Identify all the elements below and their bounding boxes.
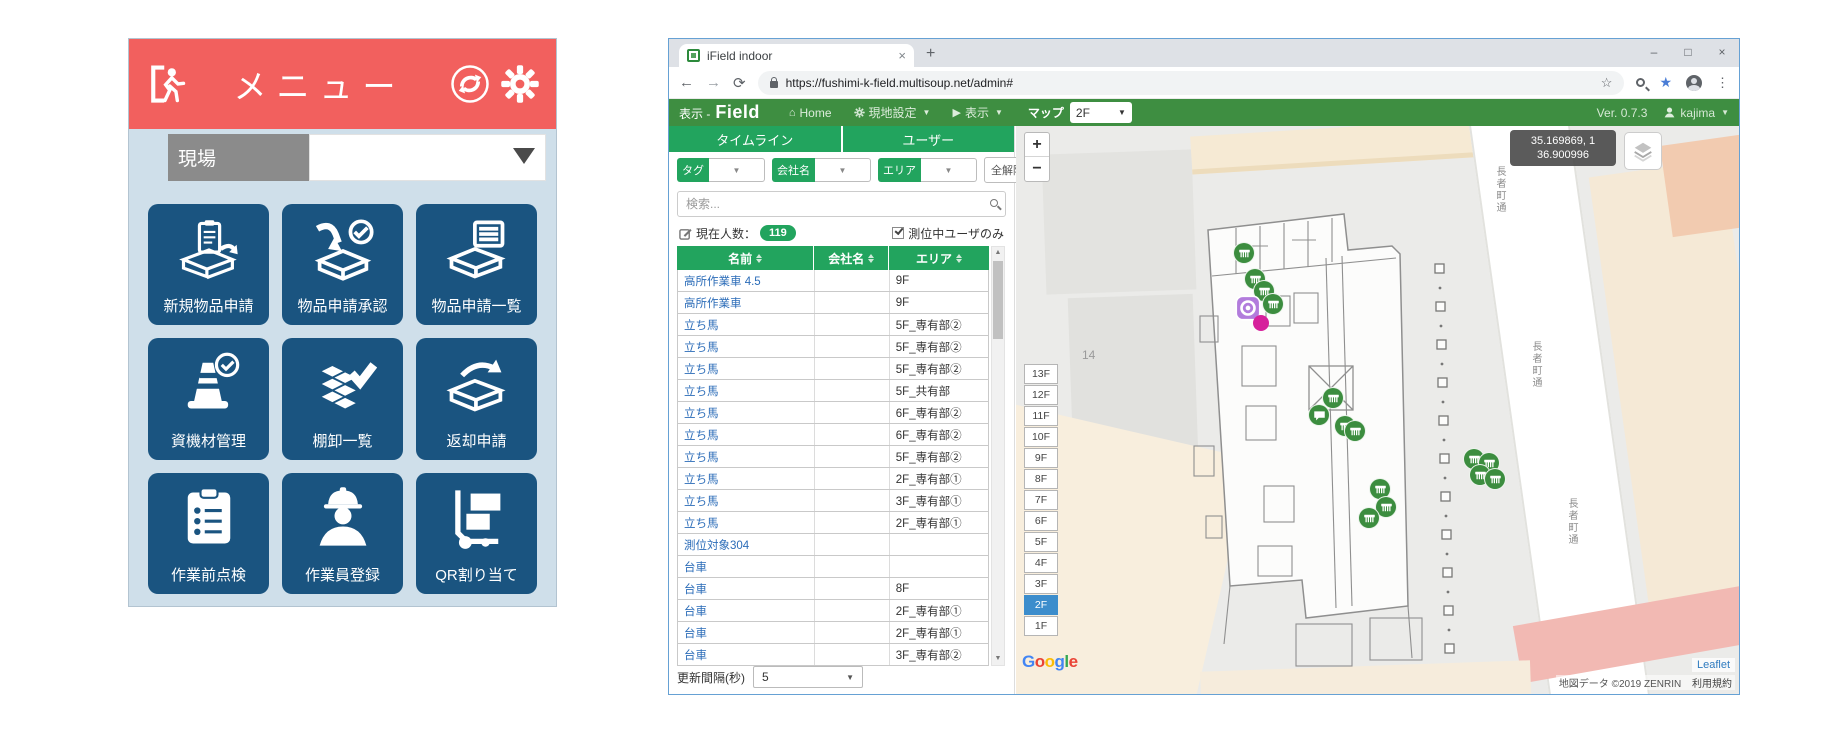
column-header-1[interactable]: 名前 [677,246,814,270]
street-name-label: 長者町通 [1528,341,1543,389]
menu-tile-grid: 新規物品申請物品申請承認物品申請一覧資機材管理棚卸一覧返却申請作業前点検作業員登… [148,204,537,594]
app-title: メニュー [189,60,450,108]
scroll-down-arrow[interactable]: ▼ [992,653,1004,665]
chevron-down-icon: ▼ [1721,108,1729,117]
table-row[interactable]: 立ち馬5F_専有部② [677,358,989,380]
table-row[interactable]: 台車8F [677,578,989,600]
worker-icon [282,473,403,564]
clipboard-list-icon [148,473,269,564]
floorplan-drawing [1146,166,1486,686]
floor-button-12f[interactable]: 12F [1024,385,1058,405]
cell-area: 6F_専有部② [889,402,988,423]
column-header-3[interactable]: エリア [889,246,989,270]
menu-tile-9[interactable]: QR割り当て [416,473,537,594]
menu-tile-4[interactable]: 資機材管理 [148,338,269,459]
tile-label: 物品申請一覧 [431,295,521,325]
cell-company [814,556,888,577]
map-floor-select[interactable]: 2F ▼ [1070,102,1132,123]
cell-company [814,468,888,489]
cell-company [814,600,888,621]
cell-name[interactable]: 立ち馬 [678,468,814,489]
brand-logo[interactable]: 表示 - Field [679,102,760,123]
cell-company [814,644,888,665]
handtruck-icon [416,473,537,564]
table-row[interactable]: 台車2F_専有部① [677,600,989,622]
dot-marker[interactable] [1253,315,1269,331]
menu-tile-6[interactable]: 返却申請 [416,338,537,459]
site-label: 現場 [168,134,309,181]
filter-label: 会社名 [772,158,815,182]
floor-button-13f[interactable]: 13F [1024,364,1058,384]
browser-tab[interactable]: iField indoor × [679,44,914,67]
cell-name[interactable]: 高所作業車 [678,292,814,313]
star-icon[interactable]: ★ [1659,74,1672,91]
table-row[interactable]: 測位対象304 [677,534,989,556]
cell-company [814,578,888,599]
back-button[interactable]: ← [679,74,694,91]
tile-label: 新規物品申請 [163,295,253,325]
table-row[interactable]: 台車 [677,556,989,578]
coords-line2: 36.900996 [1516,148,1610,162]
sidebar-tab-user[interactable]: ユーザー [843,126,1015,152]
menu-tile-2[interactable]: 物品申請承認 [282,204,403,325]
map-block-salmon [1660,135,1739,237]
table-row[interactable]: 高所作業車 4.59F [677,270,989,292]
coords-line1: 35.169869, 1 [1516,134,1610,148]
tile-label: QR割り当て [435,564,518,594]
trestle-marker[interactable] [1344,420,1366,442]
menu-kebab-icon[interactable]: ⋮ [1716,75,1729,91]
column-header-label: 名前 [728,250,752,267]
url-text: https://fushimi-k-field.multisoup.net/ad… [786,76,1593,90]
cell-company [814,490,888,511]
nav-item-label: 表示 [965,104,989,121]
forward-button[interactable]: → [706,74,721,91]
positioning-only-label: 測位中ユーザのみ [908,225,1004,242]
floor-button-1f[interactable]: 1F [1024,616,1058,636]
search-input[interactable] [677,191,1006,217]
filter-select[interactable]: ▼ [815,158,871,182]
cell-area: 3F_専有部② [889,644,988,665]
tile-label: 資機材管理 [171,430,246,460]
info-row: 現在人数： 119 測位中ユーザのみ [669,220,1014,246]
ifield-favicon [687,49,700,62]
cell-company [814,534,888,555]
cell-company [814,512,888,533]
user-table: 名前会社名エリア 高所作業車 4.59F高所作業車9F立ち馬5F_専有部②立ち馬… [677,246,989,666]
filter-select[interactable]: ▼ [709,158,765,182]
cell-area: 5F_共有部 [889,380,988,401]
map-attribution: 地図データ ©2019 ZENRIN 利用規約 [1556,675,1735,690]
menu-tile-3[interactable]: 物品申請一覧 [416,204,537,325]
indoor-map[interactable]: 長者町通長者町通長者町通 14 + − 13F12F11F10F9F8F7F6F… [1016,126,1739,694]
sidebar-tab-timeline[interactable]: タイムライン [669,126,841,152]
table-row[interactable]: 立ち馬6F_専有部② [677,402,989,424]
menu-tile-7[interactable]: 作業前点検 [148,473,269,594]
chevron-down-icon [513,148,535,164]
floor-button-3f[interactable]: 3F [1024,574,1058,594]
cell-company [814,292,888,313]
brand-prefix: 表示 - [679,105,710,122]
cell-name[interactable]: 立ち馬 [678,402,814,423]
chat-marker[interactable] [1308,404,1330,426]
block-number-label: 14 [1082,348,1095,362]
table-row[interactable]: 台車2F_専有部① [677,622,989,644]
cell-name[interactable]: 台車 [678,600,814,621]
tab-title: iField indoor [707,49,891,63]
browser-titlebar: iField indoor × + – □ × [669,39,1739,67]
reload-button[interactable]: ⟳ [733,74,746,92]
cell-area: 9F [889,292,988,313]
column-header-label: 会社名 [828,250,864,267]
exit-icon[interactable] [145,62,189,106]
cell-name[interactable]: 立ち馬 [678,424,814,445]
table-row[interactable]: 立ち馬5F_専有部② [677,314,989,336]
floor-button-11f[interactable]: 11F [1024,406,1058,426]
chevron-down-icon: ▼ [1118,108,1126,117]
chevron-down-icon: ▼ [995,108,1003,117]
interval-value: 5 [762,670,769,684]
app-header: メニュー [129,39,556,129]
cell-area: 5F_専有部② [889,336,988,357]
floor-button-7f[interactable]: 7F [1024,490,1058,510]
cell-area: 9F [889,270,988,291]
filter-label: エリア [878,158,921,182]
table-row[interactable]: 立ち馬6F_専有部② [677,424,989,446]
tile-label: 作業前点検 [171,564,246,594]
floor-selector: 13F12F11F10F9F8F7F6F5F4F3F2F1F [1024,364,1058,637]
cell-area: 2F_専有部① [889,600,988,621]
cell-name[interactable]: 立ち馬 [678,490,814,511]
version-label: Ver. 0.7.3 [1597,106,1648,120]
edit-icon [679,227,692,240]
cell-company [814,336,888,357]
table-row[interactable]: 立ち馬5F_専有部② [677,336,989,358]
box-return-icon [416,338,537,429]
google-logo[interactable]: Google [1022,652,1078,672]
nav-item-表示[interactable]: ▶表示▼ [941,99,1013,126]
trestle-marker[interactable] [1262,293,1284,315]
floor-button-9f[interactable]: 9F [1024,448,1058,468]
table-row[interactable]: 立ち馬5F_専有部② [677,446,989,468]
floor-button-10f[interactable]: 10F [1024,427,1058,447]
floor-button-6f[interactable]: 6F [1024,511,1058,531]
nav-item-label: Home [800,106,832,120]
cell-area: 2F_専有部① [889,468,988,489]
count-label: 現在人数： [696,225,756,242]
trestle-marker[interactable] [1358,507,1380,529]
filter-group-2: 会社名▼ [772,158,871,182]
cell-company [814,314,888,335]
browser-addressbar: ← → ⟳ https://fushimi-k-field.multisoup.… [669,67,1739,99]
cell-name[interactable]: 立ち馬 [678,358,814,379]
nav-item-label: 現地設定 [869,104,917,121]
street-name-label: 長者町通 [1564,498,1579,546]
menu-tile-8[interactable]: 作業員登録 [282,473,403,594]
cell-area: 5F_専有部② [889,314,988,335]
table-scrollbar[interactable]: ▲ ▼ [991,246,1005,666]
floor-button-2f[interactable]: 2F [1024,595,1058,615]
table-row[interactable]: 高所作業車9F [677,292,989,314]
table-row[interactable]: 立ち馬5F_共有部 [677,380,989,402]
user-menu[interactable]: kajima ▼ [1663,106,1729,120]
cell-area: 6F_専有部② [889,424,988,445]
map-zoom-control: + − [1024,132,1050,182]
cell-name[interactable]: 台車 [678,556,814,577]
floor-button-8f[interactable]: 8F [1024,469,1058,489]
tab-close-icon[interactable]: × [898,48,906,63]
map-floor-value: 2F [1076,106,1090,120]
interval-select[interactable]: 5 ▼ [753,666,863,688]
cell-company [814,402,888,423]
trestle-marker[interactable] [1484,468,1506,490]
url-omnibox[interactable]: https://fushimi-k-field.multisoup.net/ad… [758,71,1625,95]
table-row[interactable]: 立ち馬3F_専有部① [677,490,989,512]
sort-icon [956,254,962,263]
filter-select[interactable]: ▼ [921,158,977,182]
cell-area [889,556,988,577]
map-label: マップ [1014,104,1070,121]
browser-window: iField indoor × + – □ × ← → ⟳ https://fu… [668,38,1740,695]
filter-group-3: エリア▼ [878,158,977,182]
interval-label: 更新間隔(秒) [677,669,745,686]
cell-area [889,534,988,555]
layers-icon [1631,139,1655,163]
table-row[interactable]: 立ち馬2F_専有部① [677,512,989,534]
user-name: kajima [1680,106,1715,120]
site-dropdown[interactable] [309,134,546,181]
scrollbar-thumb[interactable] [993,261,1003,339]
refresh-interval-row: 更新間隔(秒) 5 ▼ [677,666,863,688]
cell-company [814,380,888,401]
menu-tile-5[interactable]: 棚卸一覧 [282,338,403,459]
box-check-icon [282,204,403,295]
lock-icon [770,81,778,88]
cell-name[interactable]: 高所作業車 4.5 [678,270,814,291]
street-name-label: 長者町通 [1492,166,1507,214]
zenrin-attribution: 地図データ ©2019 ZENRIN [1559,679,1681,690]
user-sidebar: タイムラインユーザー タグ▼会社名▼エリア▼全解除 現在人数： 119 測位中ユ… [669,126,1015,694]
stack-check-icon [282,338,403,429]
profile-avatar-icon[interactable] [1686,75,1702,91]
cone-check-icon [148,338,269,429]
play-icon: ▶ [952,106,960,119]
home-icon: ⌂ [789,107,796,119]
menu-app-window: メニュー 現場 新規物品申請物品申請承認物品申請一覧資機材管理棚卸一覧返却申請作… [128,38,557,607]
tile-label: 棚卸一覧 [312,430,372,460]
search-row [669,188,1014,220]
new-tab-button[interactable]: + [926,45,935,67]
cell-company [814,446,888,467]
search-icon [990,199,998,207]
cell-name[interactable]: 台車 [678,622,814,643]
cell-area: 8F [889,578,988,599]
zoom-in-button[interactable]: + [1025,133,1049,157]
coordinates-tooltip: 35.169869, 1 36.900996 [1510,130,1616,166]
cell-area: 2F_専有部① [889,622,988,643]
gear-icon [854,107,865,118]
bookmark-star-icon[interactable]: ☆ [1601,75,1613,91]
column-header-2[interactable]: 会社名 [814,246,889,270]
trestle-marker[interactable] [1233,242,1255,264]
box-list-icon [416,204,537,295]
positioning-only-checkbox[interactable] [892,227,904,239]
filter-label: タグ [677,158,709,182]
layers-control[interactable] [1624,132,1662,170]
floor-button-5f[interactable]: 5F [1024,532,1058,552]
terms-link[interactable]: 利用規約 [1692,679,1732,690]
site-selector-row: 現場 [168,134,546,181]
cell-area: 2F_専有部① [889,512,988,533]
cell-company [814,358,888,379]
cell-area: 3F_専有部① [889,490,988,511]
gear-icon[interactable] [500,64,540,104]
chevron-down-icon: ▼ [923,108,931,117]
leaflet-attribution[interactable]: Leaflet [1692,658,1735,672]
brand-name: Field [715,102,760,123]
cell-company [814,622,888,643]
cell-name[interactable]: 立ち馬 [678,512,814,533]
nav-item-home[interactable]: ⌂Home [778,99,843,126]
cell-company [814,270,888,291]
sort-icon [868,254,874,263]
window-close-button[interactable]: × [1705,39,1739,67]
sort-icon [756,254,762,263]
cell-name[interactable]: 測位対象304 [678,534,814,555]
tile-label: 返却申請 [446,430,506,460]
zoom-out-button[interactable]: − [1025,157,1049,181]
scroll-up-arrow[interactable]: ▲ [992,247,1004,259]
floor-button-4f[interactable]: 4F [1024,553,1058,573]
cell-company [814,424,888,445]
table-row[interactable]: 立ち馬2F_専有部① [677,468,989,490]
cell-name[interactable]: 立ち馬 [678,336,814,357]
window-minimize-button[interactable]: – [1637,39,1671,67]
table-row[interactable]: 台車3F_専有部② [677,644,989,666]
chevron-down-icon: ▼ [846,673,854,682]
column-header-label: エリア [916,250,952,267]
cell-name[interactable]: 立ち馬 [678,446,814,467]
cell-name[interactable]: 立ち馬 [678,314,814,335]
app-navbar: 表示 - Field ⌂Home現地設定▼▶表示▼ マップ 2F ▼ Ver. … [669,99,1739,126]
refresh-icon[interactable] [450,64,490,104]
cell-area: 5F_専有部② [889,446,988,467]
user-icon [1663,106,1676,119]
cell-name[interactable]: 立ち馬 [678,380,814,401]
zoom-page-icon[interactable] [1636,78,1645,87]
tile-label: 作業員登録 [305,564,380,594]
nav-item-現地設定[interactable]: 現地設定▼ [843,99,942,126]
cell-area: 5F_専有部② [889,358,988,379]
window-maximize-button[interactable]: □ [1671,39,1705,67]
cell-name[interactable]: 台車 [678,578,814,599]
count-badge: 119 [760,225,796,241]
filter-group-1: タグ▼ [677,158,765,182]
box-doc-arrow-icon [148,204,269,295]
menu-tile-1[interactable]: 新規物品申請 [148,204,269,325]
cell-name[interactable]: 台車 [678,644,814,665]
tile-label: 物品申請承認 [297,295,387,325]
